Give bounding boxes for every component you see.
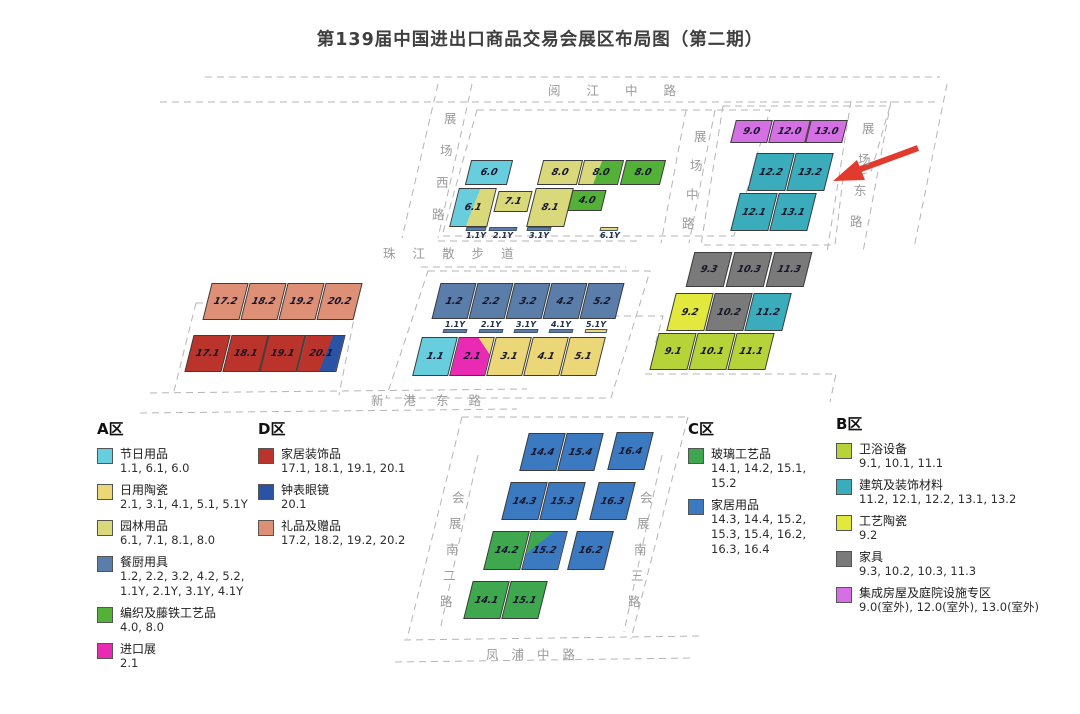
legend-item-name: 餐厨用具 [120, 555, 255, 569]
legend-item: 钟表眼镜20.1 [258, 483, 423, 512]
hall-label: 12.0 [776, 126, 802, 137]
legend-item: 工艺陶瓷9.2 [836, 514, 1074, 543]
road-label-char: 路 [850, 211, 863, 230]
hall-label: 14.3 [511, 496, 537, 507]
road-label-珠江散步道: 珠江散步道 [383, 243, 531, 262]
legend-item: 家居用品14.3, 14.4, 15.2, 15.3, 15.4, 16.2, … [688, 498, 828, 557]
hall-label: 13.1 [780, 207, 806, 218]
road-label-char: 展 [862, 118, 875, 137]
legend-item-name: 园林用品 [120, 519, 215, 533]
legend-zone-D区: D区家居装饰品17.1, 18.1, 19.1, 20.1钟表眼镜20.1礼品及… [258, 418, 423, 555]
legend-item-name: 家具 [859, 550, 976, 564]
hall-label: 15.4 [567, 447, 593, 458]
legend-color-swatch [258, 520, 274, 536]
annex-bar-shape [443, 329, 468, 333]
hall-label: 14.1 [473, 595, 499, 606]
annex-bar-shape [527, 227, 552, 231]
hall-block-8.0: 8.0 [578, 160, 624, 185]
hall-label: 18.2 [250, 296, 276, 307]
legend-item: 节日用品1.1, 6.1, 6.0 [97, 447, 255, 476]
fair-layout-map: 第139届中国进出口商品交易会展区布局图（第二期） [0, 0, 1080, 714]
hall-label: 9.2 [680, 307, 700, 318]
legend-item-name: 家居用品 [711, 498, 828, 512]
legend-item-name: 卫浴设备 [859, 442, 943, 456]
legend-item-halls: 9.2 [859, 528, 907, 543]
hall-label: 16.3 [599, 496, 625, 507]
hall-block-9.0: 9.0 [730, 120, 773, 143]
legend-item: 建筑及装饰材料11.2, 12.1, 12.2, 13.1, 13.2 [836, 478, 1074, 507]
road-label-char: 路 [682, 213, 695, 232]
annex-bar-3.1Y: 3.1Y [527, 227, 551, 240]
hall-block-13.2: 13.2 [786, 153, 833, 191]
road-label-char: 西 [436, 172, 449, 191]
legend-color-swatch [97, 607, 113, 623]
hall-block-8.0: 8.0 [537, 160, 583, 185]
hall-label: 19.2 [288, 296, 314, 307]
hall-label: 20.1 [308, 348, 334, 359]
legend-color-swatch [97, 520, 113, 536]
legend-item: 礼品及赠品17.2, 18.2, 19.2, 20.2 [258, 519, 423, 548]
legend-color-swatch [836, 551, 852, 567]
legend-color-swatch [836, 443, 852, 459]
hall-block-15.1: 15.1 [501, 581, 547, 619]
legend-color-swatch [97, 556, 113, 572]
road-label-char: 二 [443, 565, 456, 584]
road-label-char: 东 [854, 180, 867, 199]
hall-label: 11.2 [755, 307, 781, 318]
hall-label: 11.3 [776, 264, 802, 275]
hall-label: 10.3 [736, 264, 762, 275]
legend-item-halls: 1.1, 6.1, 6.0 [120, 461, 190, 476]
road-label-char: 场 [440, 140, 453, 159]
legend-color-swatch [258, 484, 274, 500]
legend-item-name: 玻璃工艺品 [711, 447, 828, 461]
hall-label: 12.2 [758, 167, 784, 178]
legend-item-name: 进口展 [120, 642, 156, 656]
legend-color-swatch [258, 448, 274, 464]
annex-bar-label: 4.1Y [549, 320, 573, 329]
hall-label: 10.1 [699, 346, 725, 357]
legend-item-name: 节日用品 [120, 447, 190, 461]
legend-item: 进口展2.1 [97, 642, 255, 671]
hall-label: 4.0 [577, 195, 597, 206]
legend-item-halls: 9.3, 10.2, 10.3, 11.3 [859, 564, 976, 579]
annex-bar-shape [600, 227, 619, 231]
hall-label: 9.3 [699, 264, 719, 275]
annex-bar-label: 2.1Y [479, 320, 503, 329]
hall-label: 13.0 [813, 126, 839, 137]
road-label-char: 展 [444, 108, 457, 127]
legend-item-halls: 14.1, 14.2, 15.1, 15.2 [711, 461, 828, 491]
legend-item-name: 日用陶瓷 [120, 483, 248, 497]
hall-label: 15.1 [511, 595, 537, 606]
annex-bar-label: 1.1Y [466, 231, 486, 240]
hall-block-9.3: 9.3 [686, 252, 733, 287]
hall-block-6.1: 6.1 [449, 188, 497, 227]
legend-item: 家具9.3, 10.2, 10.3, 11.3 [836, 550, 1074, 579]
hall-label: 4.1 [536, 351, 556, 362]
hall-label: 1.1 [425, 351, 445, 362]
road-label-char: 南 [446, 539, 459, 558]
hall-block-12.0: 12.0 [768, 120, 811, 143]
road-label-char: 场 [690, 155, 703, 174]
legend-zone-title: B区 [836, 413, 1074, 434]
annex-bar-label: 5.1Y [585, 320, 607, 329]
road-label-char: 路 [628, 591, 641, 610]
hall-block-16.3: 16.3 [589, 482, 635, 520]
legend-item-name: 集成房屋及庭院设施专区 [859, 586, 1039, 600]
road-label-char: 场 [858, 149, 871, 168]
hall-label: 5.2 [592, 296, 612, 307]
road-label-char: 路 [440, 591, 453, 610]
annex-bar-label: 6.1Y [600, 231, 618, 240]
hall-block-8.1: 8.1 [526, 188, 574, 227]
hall-label: 3.2 [518, 296, 538, 307]
legend-color-swatch [97, 484, 113, 500]
hall-block-13.0: 13.0 [805, 120, 848, 143]
legend-color-swatch [836, 587, 852, 603]
legend-item-halls: 20.1 [281, 497, 329, 512]
hall-label: 4.2 [555, 296, 575, 307]
legend-item-name: 建筑及装饰材料 [859, 478, 1016, 492]
legend-item: 日用陶瓷2.1, 3.1, 4.1, 5.1, 5.1Y [97, 483, 255, 512]
hall-label: 17.1 [194, 348, 220, 359]
legend-color-swatch [97, 448, 113, 464]
annex-bar-1.1Y: 1.1Y [466, 227, 486, 240]
hall-label: 8.0 [591, 167, 611, 178]
hall-block-15.4: 15.4 [557, 433, 603, 471]
legend-item-halls: 1.2, 2.2, 3.2, 4.2, 5.2, 1.1Y, 2.1Y, 3.1… [120, 569, 255, 599]
road-label-char: 会 [452, 487, 465, 506]
legend-item-name: 钟表眼镜 [281, 483, 329, 497]
legend-item: 集成房屋及庭院设施专区9.0(室外), 12.0(室外), 13.0(室外) [836, 586, 1074, 615]
hall-label: 2.1 [462, 351, 482, 362]
hall-block-16.4: 16.4 [607, 432, 653, 470]
legend-item: 餐厨用具1.2, 2.2, 3.2, 4.2, 5.2, 1.1Y, 2.1Y,… [97, 555, 255, 599]
legend-item-halls: 2.1 [120, 656, 156, 671]
hall-label: 2.2 [481, 296, 501, 307]
legend-item-name: 编织及藤铁工艺品 [120, 606, 216, 620]
legend-item-halls: 17.2, 18.2, 19.2, 20.2 [281, 533, 405, 548]
hall-label: 16.2 [577, 545, 603, 556]
road-label-char: 中 [686, 184, 699, 203]
annex-bar-label: 2.1Y [489, 231, 517, 240]
legend-item-halls: 9.0(室外), 12.0(室外), 13.0(室外) [859, 600, 1039, 615]
hall-block-5.2: 5.2 [580, 283, 625, 319]
hall-block-6.0: 6.0 [465, 160, 513, 185]
red-arrow-annotation [833, 148, 918, 181]
legend-item-halls: 14.3, 14.4, 15.2, 15.3, 15.4, 16.2, 16.3… [711, 512, 828, 557]
hall-label: 15.2 [531, 545, 557, 556]
legend-item-name: 工艺陶瓷 [859, 514, 907, 528]
annex-bar-shape [479, 329, 504, 333]
legend-item: 玻璃工艺品14.1, 14.2, 15.1, 15.2 [688, 447, 828, 491]
legend-item: 卫浴设备9.1, 10.1, 11.1 [836, 442, 1074, 471]
legend-item: 家居装饰品17.1, 18.1, 19.1, 20.1 [258, 447, 423, 476]
legend-zone-title: A区 [97, 418, 255, 439]
hall-label: 14.2 [493, 545, 519, 556]
road-label-char: 展 [694, 126, 707, 145]
legend-color-swatch [688, 499, 704, 515]
legend-item-name: 礼品及赠品 [281, 519, 405, 533]
road-label-新港东路: 新港东路 [371, 390, 501, 409]
legend-item-halls: 4.0, 8.0 [120, 620, 216, 635]
hall-label: 18.1 [232, 348, 258, 359]
hall-label: 6.0 [479, 167, 499, 178]
legend-zone-C区: C区玻璃工艺品14.1, 14.2, 15.1, 15.2家居用品14.3, 1… [688, 418, 828, 564]
hall-label: 14.4 [529, 447, 555, 458]
legend-color-swatch [97, 643, 113, 659]
legend-item-halls: 17.1, 18.1, 19.1, 20.1 [281, 461, 405, 476]
hall-label: 20.2 [326, 296, 352, 307]
hall-label: 9.0 [742, 126, 762, 137]
hall-block-8.0: 8.0 [620, 160, 666, 185]
annex-bar-shape [466, 227, 487, 231]
hall-label: 3.1 [499, 351, 519, 362]
legend-color-swatch [836, 515, 852, 531]
legend-item-halls: 2.1, 3.1, 4.1, 5.1, 5.1Y [120, 497, 248, 512]
hall-block-16.2: 16.2 [567, 531, 614, 570]
legend-zone-A区: A区节日用品1.1, 6.1, 6.0日用陶瓷2.1, 3.1, 4.1, 5.… [97, 418, 255, 678]
hall-label: 6.1 [463, 202, 483, 213]
hall-block-15.3: 15.3 [539, 482, 585, 520]
hall-label: 5.1 [573, 351, 593, 362]
annex-bar-label: 3.1Y [514, 320, 538, 329]
hall-label: 10.2 [716, 307, 742, 318]
annex-bar-2.1Y: 2.1Y [479, 320, 503, 333]
page-title: 第139届中国进出口商品交易会展区布局图（第二期） [0, 26, 1080, 51]
annex-bar-label: 1.1Y [443, 320, 467, 329]
annex-bar-1.1Y: 1.1Y [443, 320, 467, 333]
hall-block-11.2: 11.2 [744, 293, 791, 331]
hall-label: 19.1 [269, 348, 295, 359]
legend-item: 园林用品6.1, 7.1, 8.1, 8.0 [97, 519, 255, 548]
annex-bar-5.1Y: 5.1Y [585, 320, 607, 333]
hall-block-13.1: 13.1 [769, 193, 816, 231]
legend-item-halls: 11.2, 12.1, 12.2, 13.1, 13.2 [859, 492, 1016, 507]
legend-zone-title: C区 [688, 418, 828, 439]
hall-label: 8.0 [550, 167, 570, 178]
road-label-char: 南 [634, 539, 647, 558]
hall-label: 16.4 [617, 446, 643, 457]
road-label-阅江中路: 阅江中路 [548, 80, 702, 99]
hall-label: 11.1 [738, 346, 764, 357]
hall-label: 1.2 [444, 296, 464, 307]
hall-block-10.3: 10.3 [726, 252, 773, 287]
road-label-char: 展 [637, 513, 650, 532]
hall-label: 8.0 [633, 167, 653, 178]
hall-label: 9.1 [663, 346, 683, 357]
annex-bar-2.1Y: 2.1Y [489, 227, 517, 240]
hall-label: 12.1 [741, 207, 767, 218]
annex-bar-shape [489, 227, 518, 231]
hall-block-11.3: 11.3 [766, 252, 813, 287]
annex-bar-shape [585, 329, 608, 333]
road-label-char: 三 [631, 565, 644, 584]
legend-item-halls: 6.1, 7.1, 8.1, 8.0 [120, 533, 215, 548]
hall-block-7.1: 7.1 [493, 191, 532, 212]
legend-zone-B区: B区卫浴设备9.1, 10.1, 11.1建筑及装饰材料11.2, 12.1, … [836, 413, 1074, 622]
annex-bar-3.1Y: 3.1Y [514, 320, 538, 333]
hall-block-4.0: 4.0 [567, 190, 606, 211]
legend-color-swatch [836, 479, 852, 495]
hall-label: 8.1 [540, 202, 560, 213]
road-label-char: 会 [640, 487, 653, 506]
legend-color-swatch [688, 448, 704, 464]
legend-item-name: 家居装饰品 [281, 447, 405, 461]
legend-item-halls: 9.1, 10.1, 11.1 [859, 456, 943, 471]
legend-zone-title: D区 [258, 418, 423, 439]
road-label-凤浦中路: 凤浦中路 [486, 644, 588, 663]
annex-bar-shape [514, 329, 539, 333]
hall-label: 7.1 [503, 196, 523, 207]
hall-block-20.2: 20.2 [316, 283, 362, 320]
road-label-char: 展 [449, 513, 462, 532]
annex-bar-4.1Y: 4.1Y [549, 320, 573, 333]
hall-block-20.1: 20.1 [296, 335, 345, 372]
annex-bar-label: 3.1Y [527, 231, 551, 240]
legend-item: 编织及藤铁工艺品4.0, 8.0 [97, 606, 255, 635]
annex-bar-shape [549, 329, 574, 333]
road-label-char: 路 [432, 204, 445, 223]
hall-label: 13.2 [797, 167, 823, 178]
hall-label: 15.3 [549, 496, 575, 507]
annex-bar-6.1Y: 6.1Y [600, 227, 618, 240]
hall-label: 17.2 [212, 296, 238, 307]
hall-block-11.1: 11.1 [727, 333, 774, 370]
